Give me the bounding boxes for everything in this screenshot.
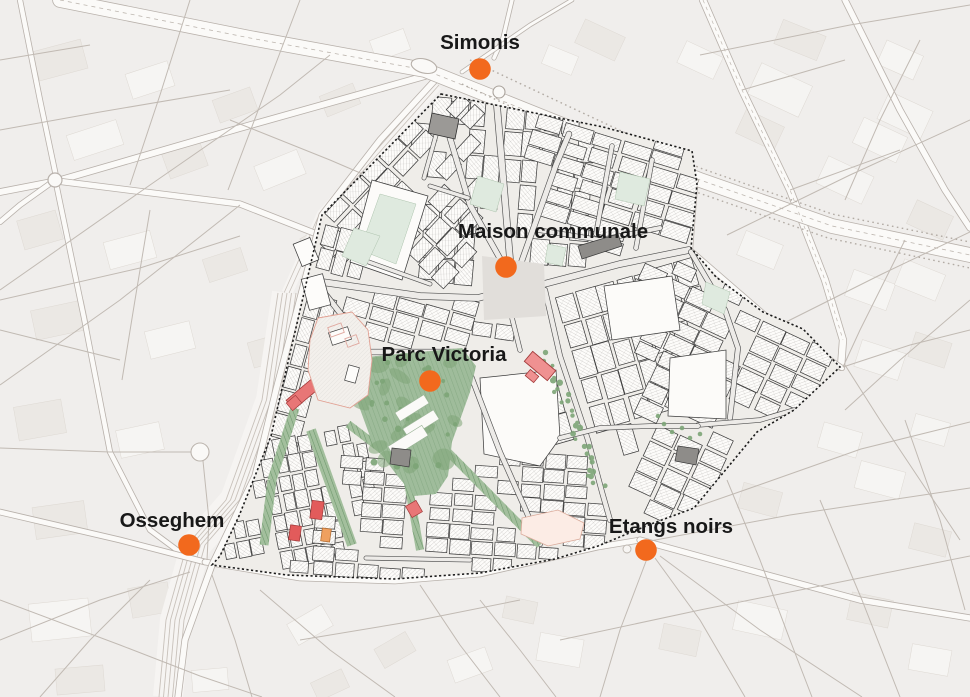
svg-text:Maison communale: Maison communale: [458, 220, 648, 243]
svg-text:Osseghem: Osseghem: [120, 509, 225, 532]
svg-text:Parc Victoria: Parc Victoria: [382, 343, 508, 366]
svg-text:Simonis: Simonis: [440, 31, 520, 54]
svg-text:Etangs noirs: Etangs noirs: [609, 515, 733, 538]
